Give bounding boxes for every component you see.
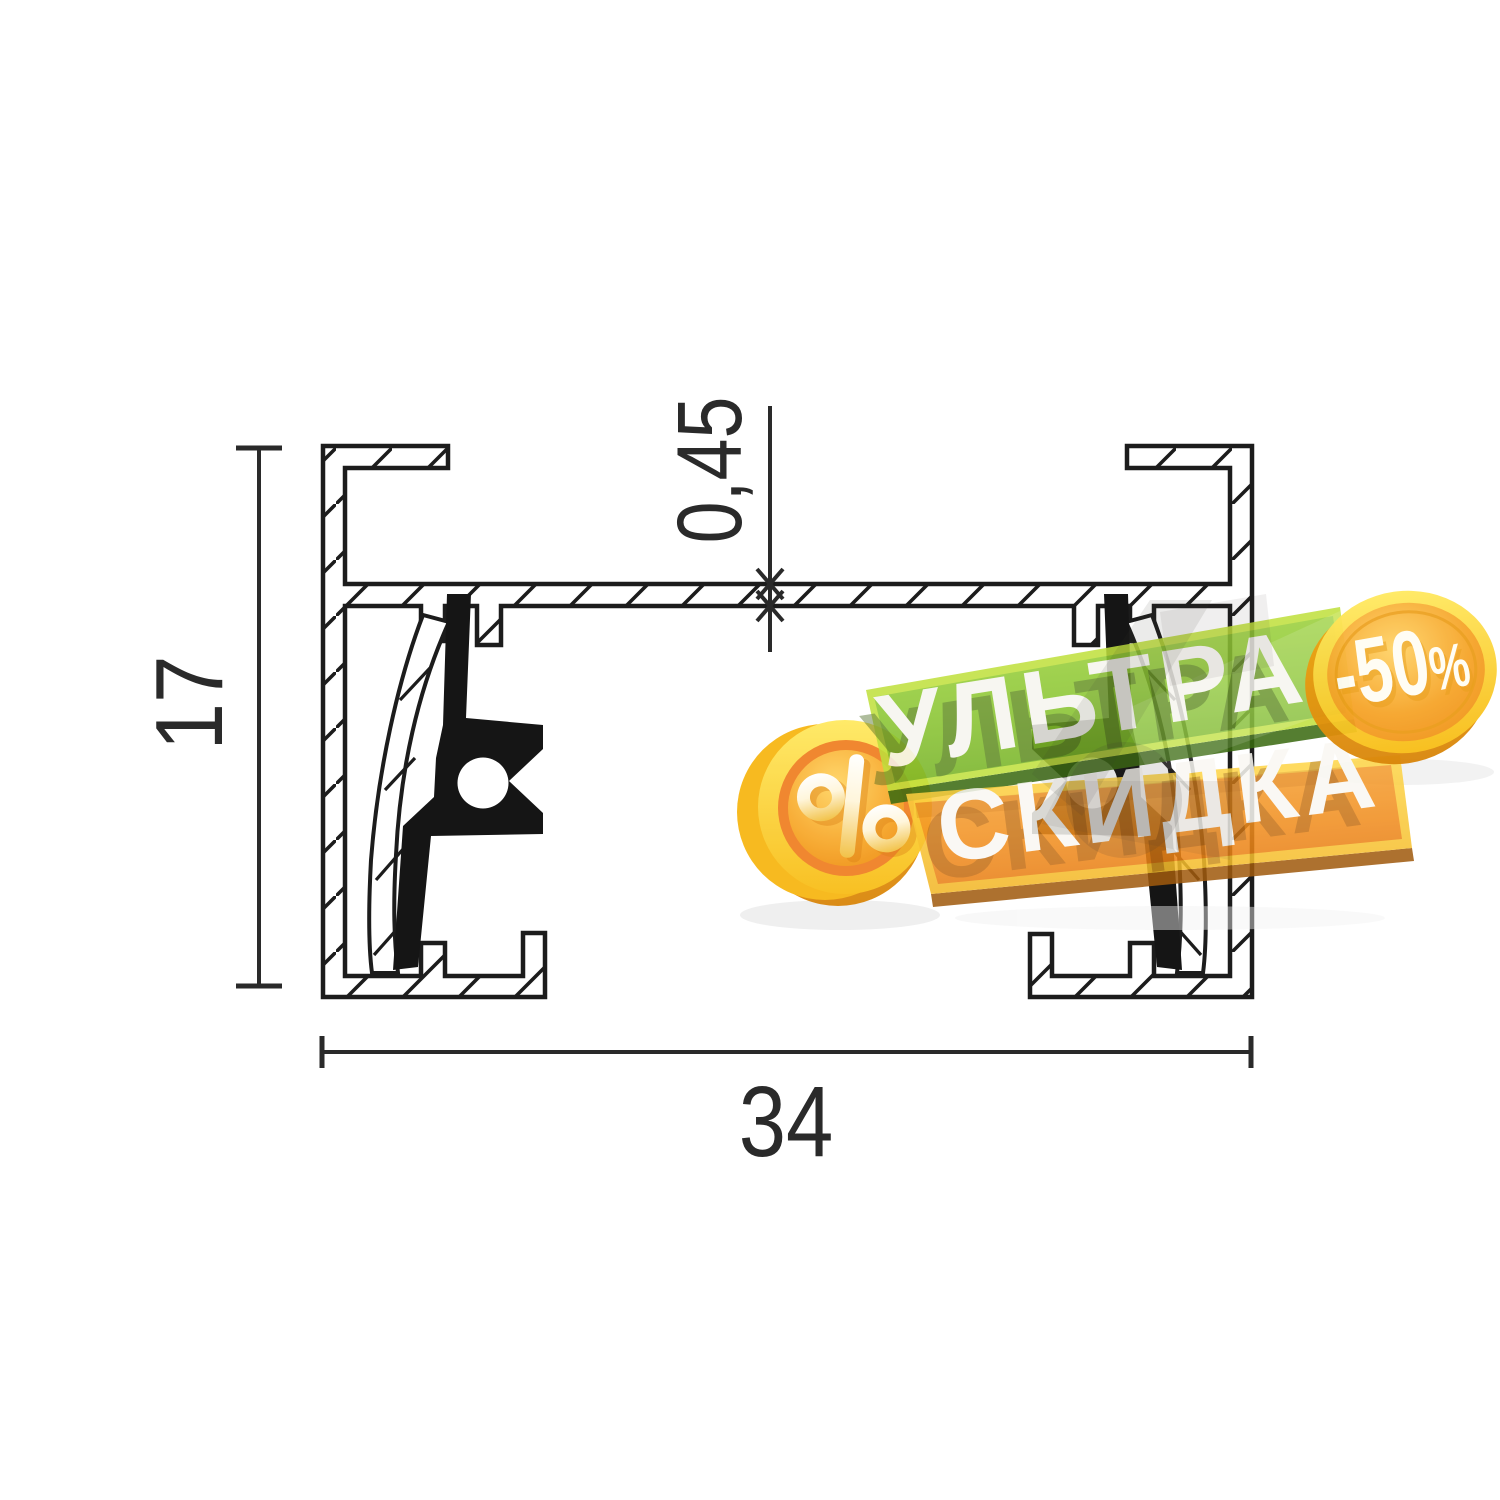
- svg-text:34: 34: [739, 1065, 834, 1177]
- svg-text:17: 17: [136, 655, 243, 750]
- svg-text:0,45: 0,45: [658, 397, 761, 544]
